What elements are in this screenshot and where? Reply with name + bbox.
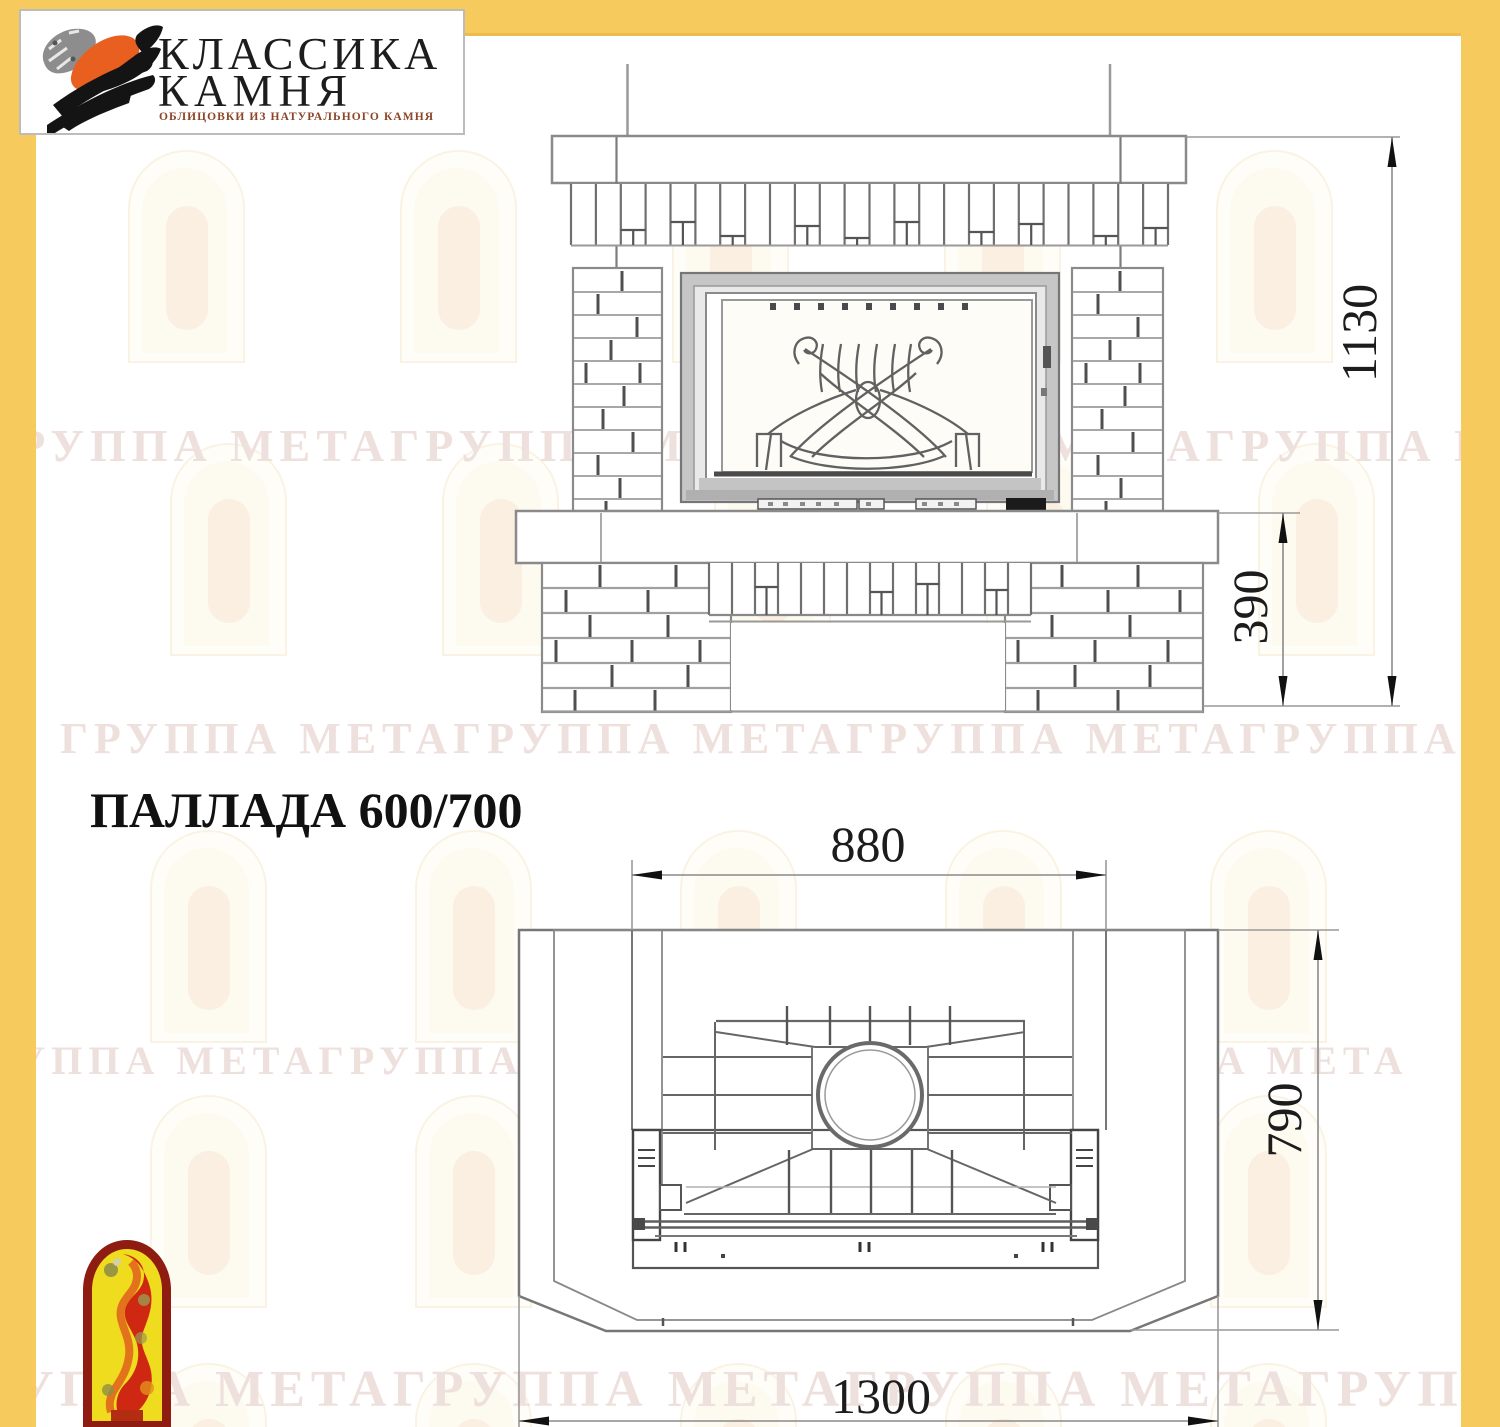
svg-text:1130: 1130 — [1331, 284, 1387, 382]
svg-text:790: 790 — [1256, 1083, 1312, 1158]
svg-text:880: 880 — [831, 816, 906, 872]
svg-text:390: 390 — [1222, 570, 1278, 645]
svg-text:1300: 1300 — [831, 1368, 931, 1424]
